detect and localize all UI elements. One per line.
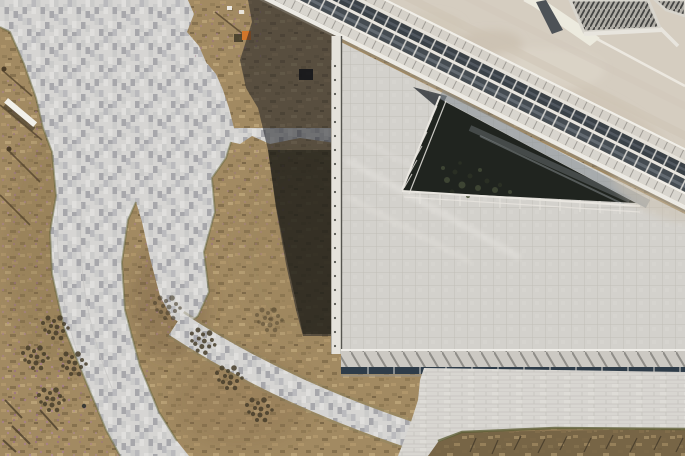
- louvre-vent-grate: [570, 0, 660, 32]
- aerial-photo: [0, 0, 685, 456]
- small-tree: [7, 147, 12, 152]
- roof-parapet: [332, 36, 342, 354]
- parapet-strip: [332, 36, 342, 354]
- equipment-shadow: [234, 34, 243, 42]
- white-post: [239, 10, 244, 14]
- small-object: [82, 404, 86, 408]
- aerial-photo-stage: [0, 0, 685, 456]
- white-post: [227, 6, 232, 10]
- parapet-railing-dots: [334, 65, 336, 347]
- small-tree: [2, 67, 7, 72]
- shadowed-bench-block: [299, 69, 313, 80]
